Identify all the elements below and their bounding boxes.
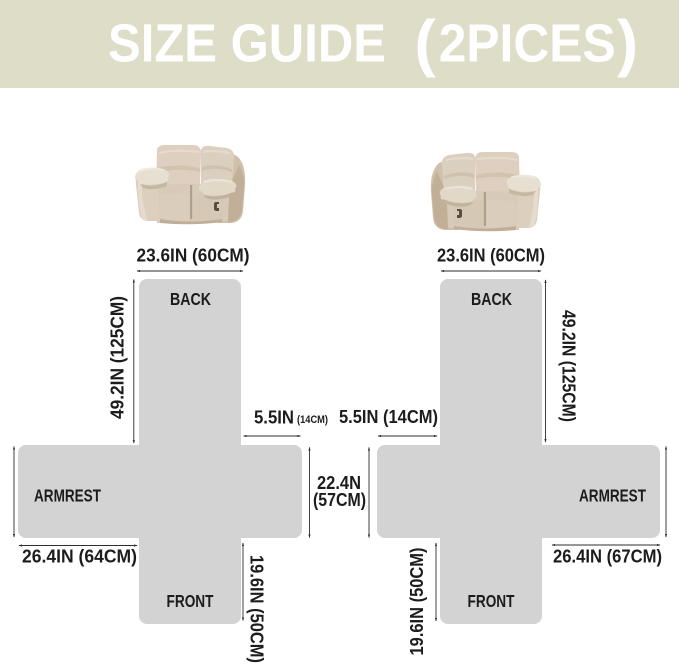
svg-text:23.6IN (60CM): 23.6IN (60CM): [137, 246, 250, 266]
svg-text:FRONT: FRONT: [167, 591, 214, 611]
svg-text:SIZE GUIDE: SIZE GUIDE: [108, 14, 386, 74]
svg-text:(: (: [415, 9, 437, 79]
svg-text:ARMREST: ARMREST: [34, 486, 101, 506]
svg-text:FRONT: FRONT: [468, 591, 515, 611]
svg-text:5.5IN (14CM): 5.5IN (14CM): [339, 407, 438, 427]
svg-text:): ): [617, 9, 638, 79]
svg-text:BACK: BACK: [471, 289, 512, 309]
svg-text:19.6IN (50CM): 19.6IN (50CM): [407, 548, 427, 656]
svg-text:2PICES: 2PICES: [439, 14, 616, 74]
svg-text:19.6IN (50CM): 19.6IN (50CM): [247, 555, 267, 663]
svg-text:(57CM): (57CM): [313, 490, 366, 510]
svg-text:23.6IN (60CM): 23.6IN (60CM): [437, 246, 545, 266]
svg-text:49.2IN (125CM): 49.2IN (125CM): [559, 310, 579, 422]
svg-text:5.5IN: 5.5IN: [254, 408, 294, 428]
svg-text:(14CM): (14CM): [297, 414, 328, 426]
svg-text:26.4IN (64CM): 26.4IN (64CM): [22, 547, 137, 567]
svg-text:BACK: BACK: [170, 289, 211, 309]
svg-text:49.2IN (125CM): 49.2IN (125CM): [108, 296, 128, 419]
svg-text:ARMREST: ARMREST: [579, 486, 646, 506]
svg-text:26.4IN (67CM): 26.4IN (67CM): [553, 547, 662, 567]
